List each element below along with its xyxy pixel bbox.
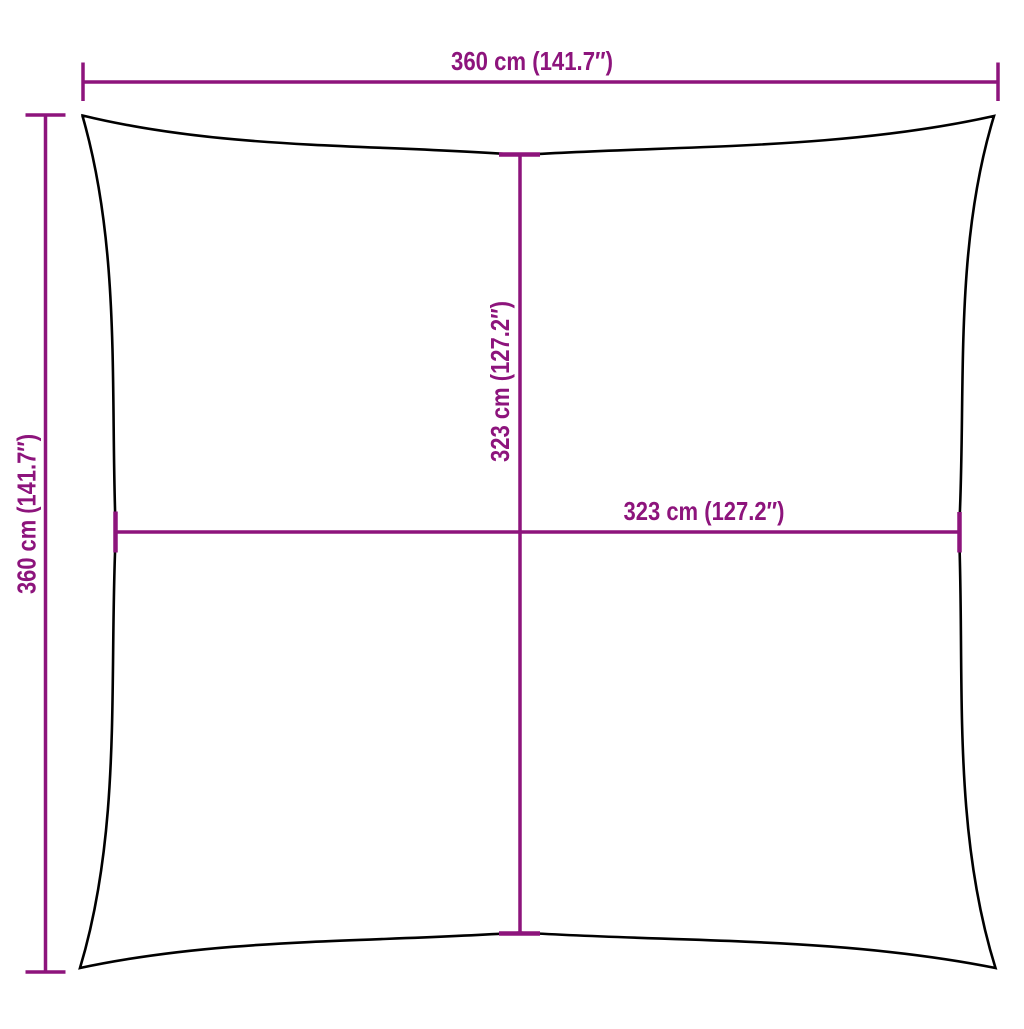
svg-text:323 cm (127.2″): 323 cm (127.2″) <box>624 496 785 526</box>
svg-text:323 cm (127.2″): 323 cm (127.2″) <box>485 301 515 462</box>
svg-text:360 cm (141.7″): 360 cm (141.7″) <box>451 46 613 76</box>
svg-text:360 cm (141.7″): 360 cm (141.7″) <box>12 434 42 594</box>
